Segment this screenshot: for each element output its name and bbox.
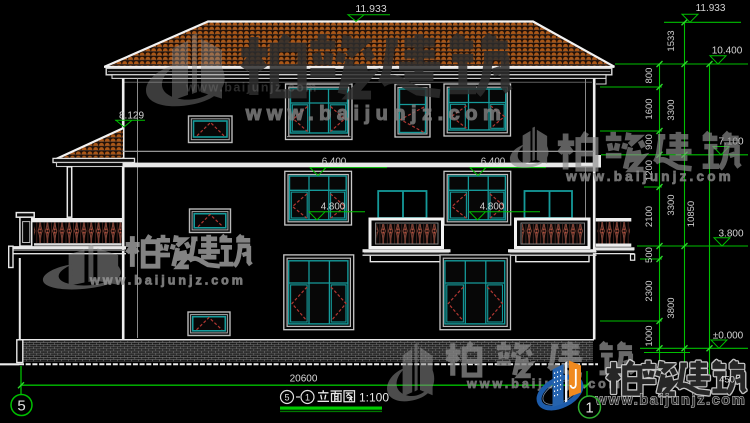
svg-text:4.800: 4.800: [480, 202, 505, 213]
svg-text:1533: 1533: [666, 30, 677, 51]
svg-text:www.baijunjz.com: www.baijunjz.com: [245, 103, 507, 125]
svg-text:1000: 1000: [644, 325, 655, 346]
svg-text:20600: 20600: [290, 374, 318, 385]
svg-text:4.800: 4.800: [321, 202, 346, 213]
svg-text:3300: 3300: [666, 194, 677, 215]
svg-text:6.400: 6.400: [481, 157, 506, 168]
svg-text:10.400: 10.400: [712, 46, 743, 57]
svg-text:900: 900: [644, 134, 655, 150]
svg-text:1600: 1600: [644, 98, 655, 119]
svg-text:5: 5: [284, 393, 289, 403]
svg-text:2100: 2100: [644, 206, 655, 227]
svg-text:1: 1: [585, 400, 593, 417]
svg-text:11.933: 11.933: [355, 3, 386, 15]
svg-text:5: 5: [17, 398, 25, 415]
svg-text:1: 1: [305, 393, 310, 403]
svg-text:10850: 10850: [686, 201, 697, 227]
svg-text:1:100: 1:100: [359, 391, 389, 405]
svg-text:11.933: 11.933: [696, 3, 726, 14]
svg-text:800: 800: [644, 68, 655, 84]
svg-text:www.baijunjz.com: www.baijunjz.com: [185, 81, 318, 95]
svg-text:500: 500: [644, 247, 655, 263]
svg-text:2300: 2300: [644, 280, 655, 301]
svg-text:www.baijunjz.com: www.baijunjz.com: [565, 169, 734, 184]
svg-text:6.400: 6.400: [322, 157, 347, 168]
svg-text:www.baijunjz.com: www.baijunjz.com: [89, 274, 246, 288]
svg-text:www.baijunjz.com: www.baijunjz.com: [595, 393, 747, 409]
svg-text:450: 450: [719, 375, 735, 386]
svg-text:3300: 3300: [666, 99, 677, 120]
svg-text:3800: 3800: [666, 297, 677, 318]
